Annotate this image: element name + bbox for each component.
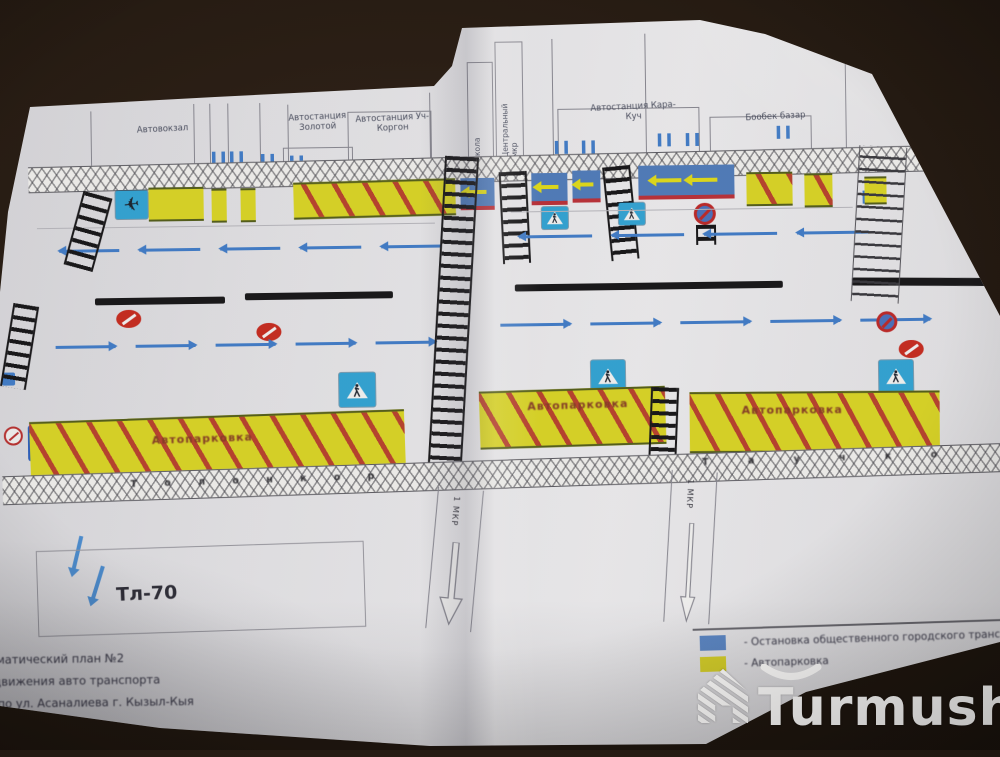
bus-stop-pole-marker (582, 140, 595, 153)
parking-bay (211, 189, 226, 223)
parking-zone-label: Автопарковка (527, 397, 629, 413)
bus-stop-zone (572, 170, 600, 202)
photo-of-traffic-scheme: { "watermark": { "brand": "Turmush" }, "… (0, 0, 1000, 750)
direction-arrow-icon (434, 541, 471, 627)
pedestrian-crossing (499, 171, 531, 264)
legend-label: - Остановка общественного городского тра… (744, 627, 1000, 648)
legend-swatch-bus-stop (700, 635, 726, 651)
no-stopping-sign (694, 203, 716, 225)
bus-stop-pole-marker (555, 141, 568, 154)
traffic-arrows-left-lower (56, 341, 436, 349)
caption-line: по ул. Асаналиева г. Кызыл-Кыя (0, 694, 194, 711)
no-entry-sign (116, 310, 141, 328)
median-bar (95, 297, 225, 306)
parking-zone-striped (293, 178, 456, 220)
parcel-line (845, 57, 847, 149)
direction-arrow-icon (677, 523, 701, 624)
pedestrian-crossing-sign (879, 360, 913, 392)
building-label-vertical: Центральный мкр (500, 87, 519, 157)
left-arrow-icon (579, 182, 593, 186)
airplane-icon: ✈ (122, 194, 141, 215)
pedestrian-crossing (648, 387, 679, 460)
pedestrian-crossing (0, 303, 39, 390)
caption-line: ематический план №2 (0, 651, 124, 667)
parking-zone-label: Автопарковка (742, 403, 843, 417)
pedestrian-crossing-sign (619, 203, 645, 225)
paper-sheet: Автовокзал Автостанция Золотой Автостанц… (0, 0, 1000, 750)
side-road-right: 1 МКР (663, 470, 717, 624)
bus-stop-pole-marker (658, 133, 671, 146)
turmush-wordmark: Turmush (758, 678, 1000, 738)
traffic-arrows-right-lower (500, 318, 930, 327)
block-label: Тл-70 (116, 581, 178, 605)
no-entry-sign (899, 340, 924, 358)
traffic-arrows-left-upper (59, 245, 441, 253)
block-tl70: Тл-70 (36, 541, 367, 637)
traffic-arrows-right-upper (519, 231, 869, 238)
parking-zone-striped (746, 172, 792, 207)
left-arrow-icon (691, 178, 717, 182)
caption-line: движения авто транспорта (0, 673, 160, 689)
pedestrian-crossing-sign (339, 372, 375, 406)
bus-stop-pole-marker (686, 133, 699, 146)
parcel-line (551, 39, 554, 161)
airport-bus-sign: ✈ (115, 191, 147, 219)
no-stopping-sign (4, 426, 23, 445)
street-name-left: Т о л о н к о р (130, 471, 386, 490)
side-road-label: 1 МКР (685, 479, 696, 510)
street-name-right: Т а у ч к о (702, 449, 955, 468)
bus-stop-zone (531, 173, 567, 205)
parking-bay (148, 187, 203, 222)
turmush-house-icon (692, 662, 754, 728)
median-bar (515, 281, 783, 292)
pedestrian-crossing (64, 191, 113, 272)
parking-zone-striped: Автопарковка (479, 386, 667, 450)
bus-stop-pole-marker (777, 126, 790, 139)
parking-bay (240, 188, 255, 222)
left-arrow-icon (655, 178, 681, 182)
building-label: Автовокзал (102, 121, 222, 137)
left-arrow-icon (540, 185, 558, 189)
median-bar (245, 291, 393, 300)
legend-row-bus-stop: - Остановка общественного городского тра… (700, 625, 1000, 650)
side-road-right (851, 145, 908, 303)
traffic-scheme: Автовокзал Автостанция Золотой Автостанц… (0, 0, 1000, 757)
parking-zone-striped (804, 173, 832, 207)
building-label: Автостанция Уч-Коргон (349, 111, 436, 136)
parking-zone-striped: Автопарковка (690, 390, 940, 453)
side-road-left: 1 МКР (425, 487, 484, 633)
side-road-label: 1 МКР (450, 496, 462, 527)
bus-stop-zone (638, 164, 734, 199)
building-label: Автостанция Золотой (275, 110, 360, 134)
turmush-watermark: Turmush (692, 662, 1000, 728)
no-stopping-sign (876, 311, 897, 332)
parking-zone-label: Автопарковка (152, 430, 254, 447)
